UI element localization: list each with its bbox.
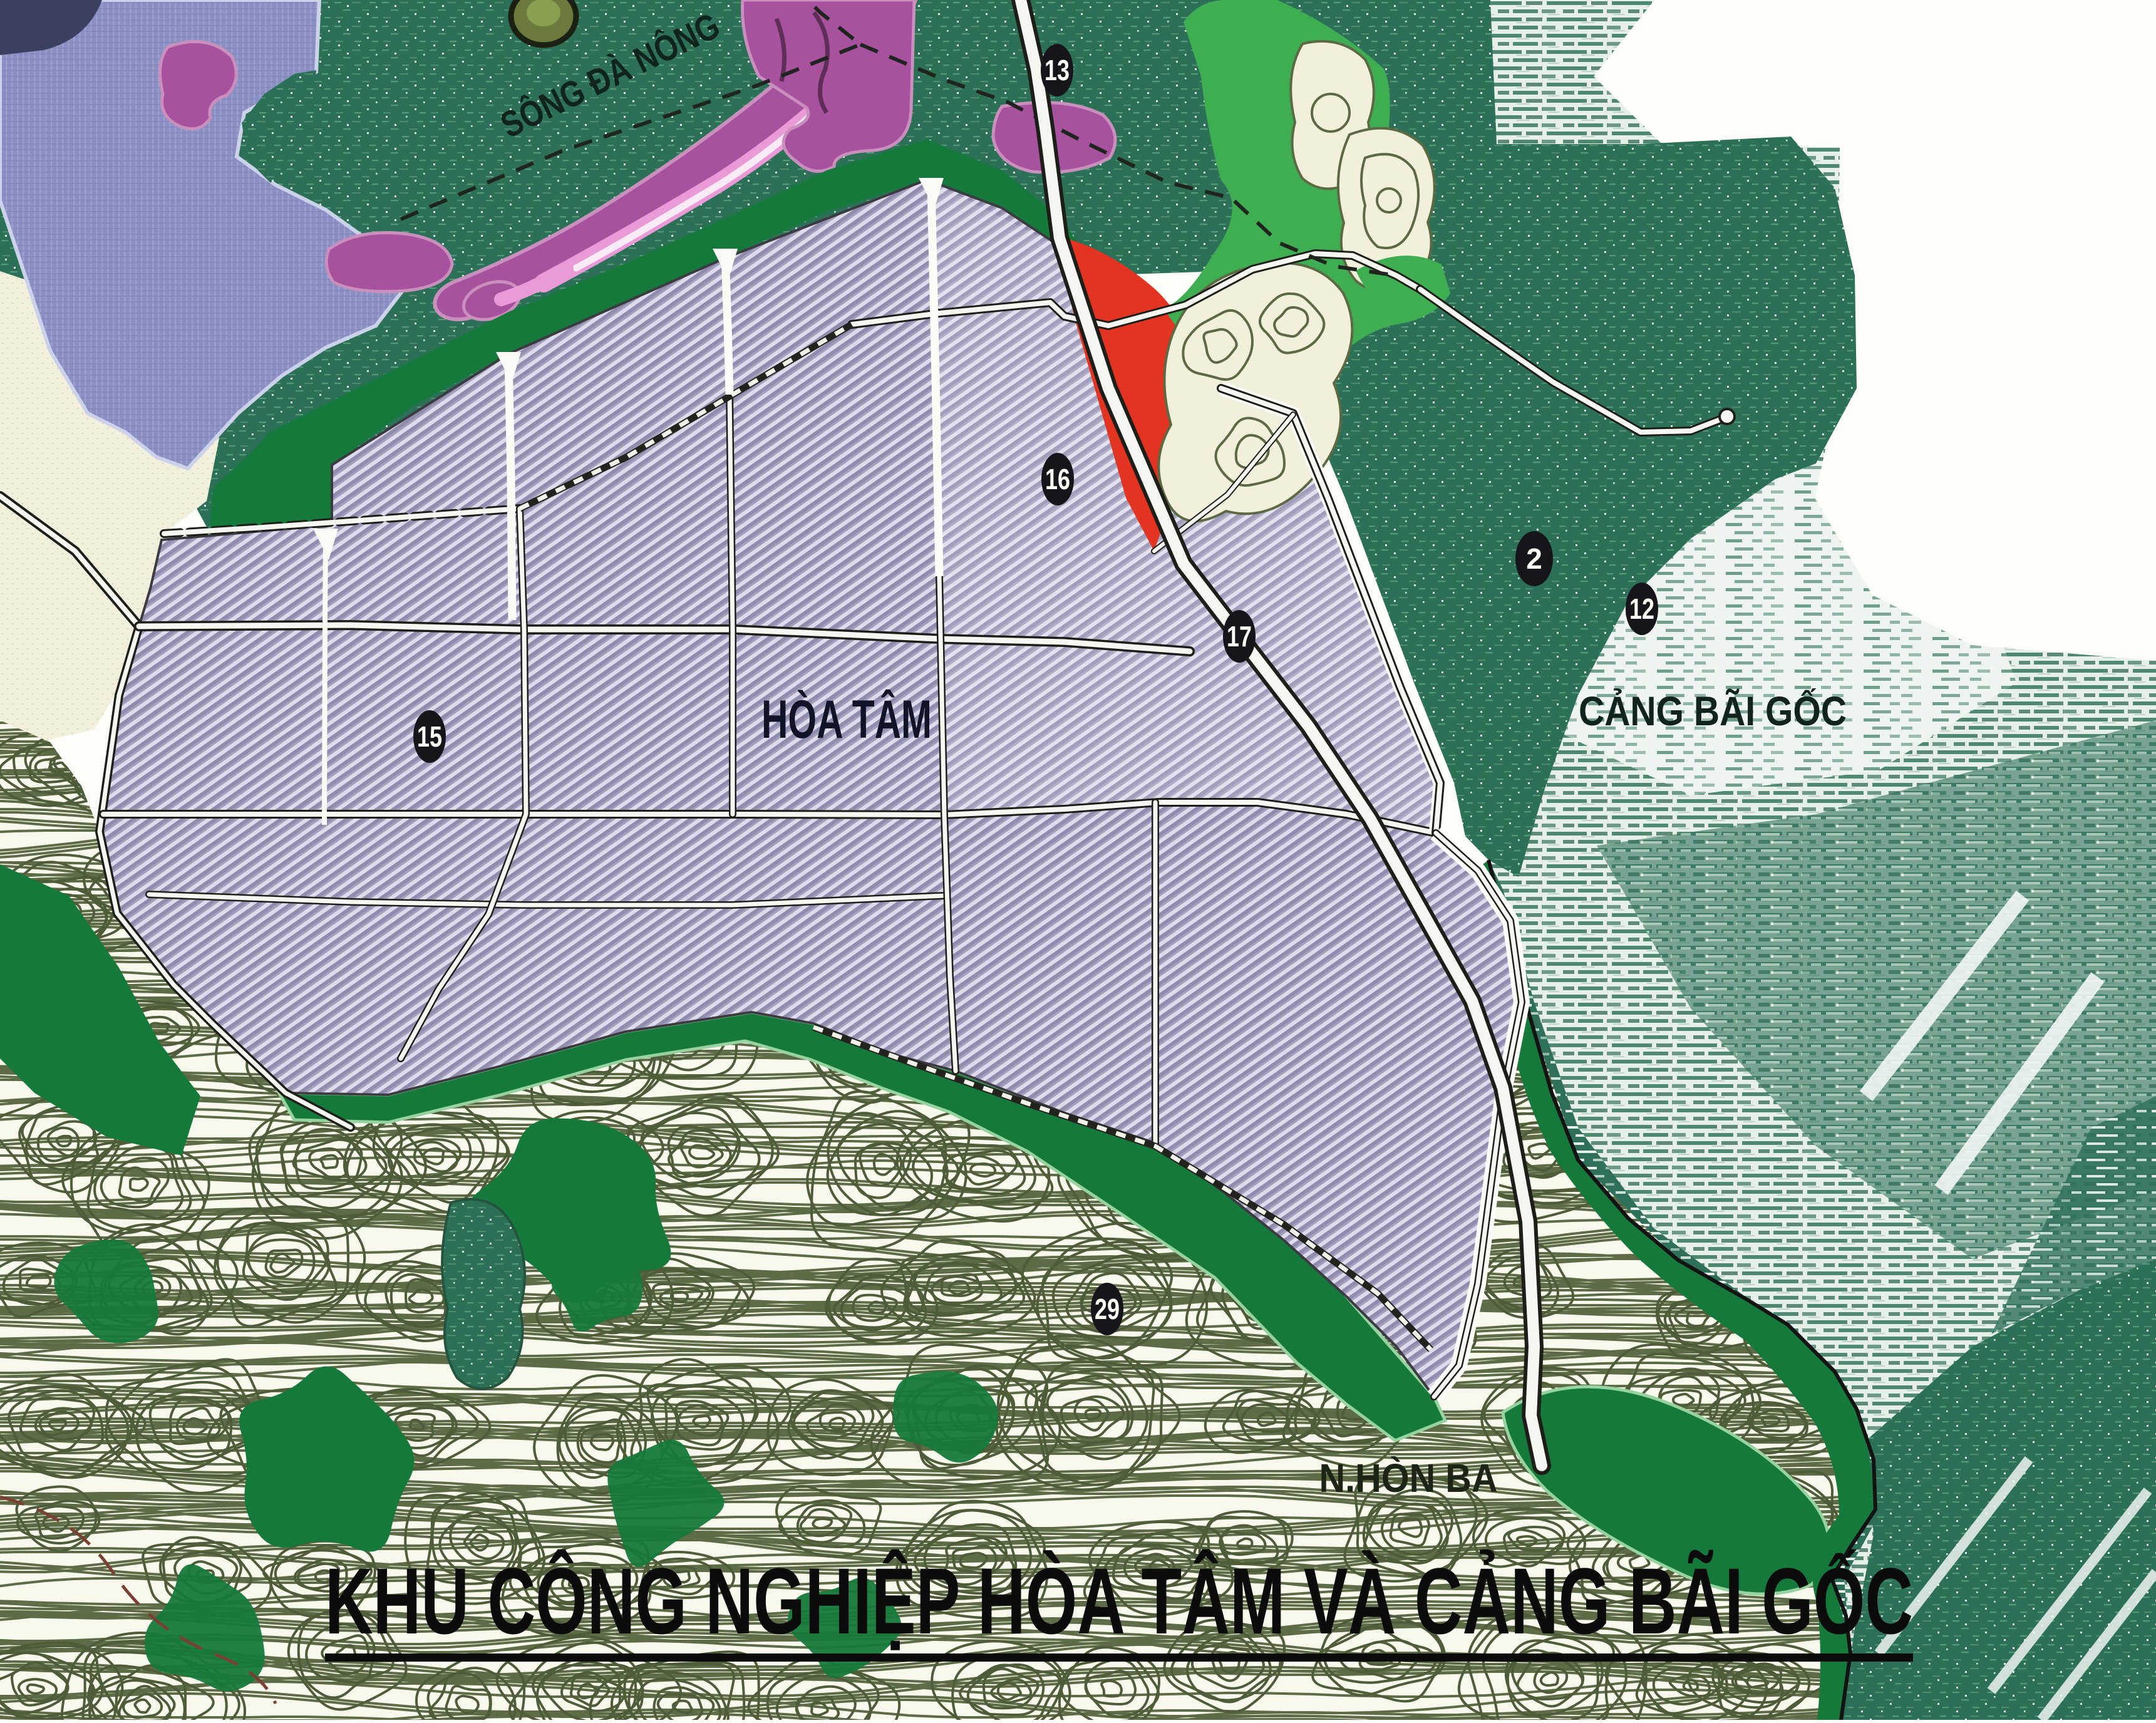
- svg-text:15: 15: [417, 720, 442, 753]
- svg-text:KHU CÔNG NGHIỆP HÒA TÂM VÀ CẢN: KHU CÔNG NGHIỆP HÒA TÂM VÀ CẢNG BÃI GỐC: [325, 1548, 1913, 1653]
- svg-text:12: 12: [1629, 592, 1654, 625]
- svg-text:29: 29: [1095, 1293, 1120, 1325]
- svg-text:N.HÒN BA: N.HÒN BA: [1319, 1456, 1498, 1501]
- svg-text:13: 13: [1044, 54, 1070, 86]
- svg-text:CẢNG BÃI GỐC: CẢNG BÃI GỐC: [1579, 688, 1847, 734]
- svg-text:17: 17: [1227, 620, 1252, 653]
- svg-text:HÒA TÂM: HÒA TÂM: [761, 690, 932, 750]
- svg-text:16: 16: [1045, 463, 1070, 495]
- svg-text:2: 2: [1526, 542, 1542, 575]
